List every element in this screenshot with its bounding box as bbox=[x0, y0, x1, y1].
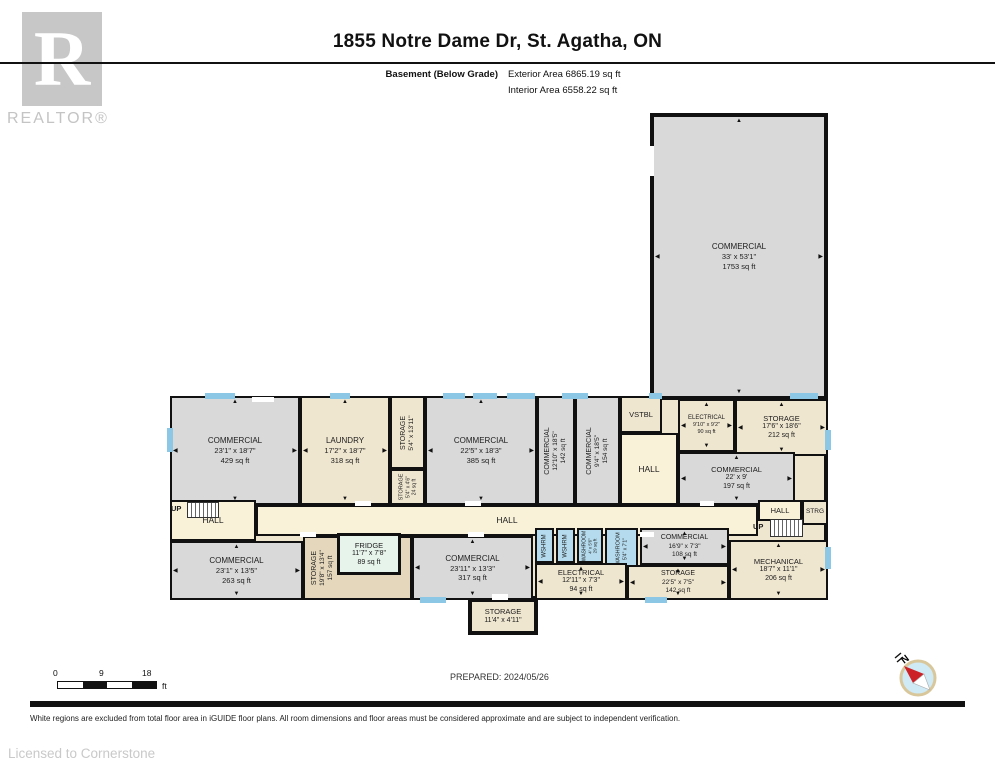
scale-tick-9: 9 bbox=[99, 668, 104, 678]
dimension-arrow: ▶ bbox=[529, 448, 534, 454]
scale-segment bbox=[58, 682, 83, 688]
window bbox=[473, 393, 497, 399]
room-laundry: LAUNDRY17'2" x 18'7"318 sq ft▲▼◀▶ bbox=[300, 396, 390, 505]
dimension-arrow: ◀ bbox=[630, 580, 635, 586]
dimension-arrow: ▲ bbox=[232, 399, 238, 405]
stairs-up-label: UP bbox=[171, 504, 181, 513]
scale-segment bbox=[132, 682, 157, 688]
stairs bbox=[770, 519, 803, 537]
dimension-arrow: ▲ bbox=[478, 399, 484, 405]
room-commercial-429: COMMERCIAL23'1" x 18'7"429 sq ft▲▼◀▶ bbox=[170, 396, 300, 505]
dimension-arrow: ▶ bbox=[727, 423, 732, 429]
dimension-arrow: ◀ bbox=[428, 448, 433, 454]
scale-tick-18: 18 bbox=[142, 668, 151, 678]
dimension-arrow: ▼ bbox=[342, 496, 348, 502]
window bbox=[562, 393, 588, 399]
dimension-arrow: ▼ bbox=[704, 443, 710, 449]
dimension-arrow: ◀ bbox=[655, 254, 660, 260]
dimension-arrow: ▼ bbox=[675, 591, 681, 597]
scale-unit: ft bbox=[162, 681, 167, 691]
room-storage-bump: STORAGE11'4" x 4'11" bbox=[468, 598, 538, 635]
window bbox=[420, 597, 446, 603]
room-storage-142: STORAGE22'5" x 7'5"142 sq ft▲▼◀▶ bbox=[627, 565, 729, 600]
stairs bbox=[187, 502, 219, 518]
floorplan-canvas: COMMERCIAL33' x 53'1"1753 sq ft▲▼◀▶COMME… bbox=[0, 0, 995, 768]
dimension-arrow: ▲ bbox=[682, 531, 688, 537]
dimension-arrow: ▶ bbox=[721, 580, 726, 586]
room-fridge: FRIDGE11'7" x 7'8"89 sq ft bbox=[337, 533, 401, 575]
floorplan-page: R REALTOR® 1855 Notre Dame Dr, St. Agath… bbox=[0, 0, 995, 768]
dimension-arrow: ◀ bbox=[173, 448, 178, 454]
dimension-arrow: ◀ bbox=[681, 476, 686, 482]
room-electrical-90: ELECTRICAL9'10" x 9'2"90 sq ft▲▼◀▶ bbox=[678, 399, 735, 452]
dimension-arrow: ▶ bbox=[292, 448, 297, 454]
prepared-date: PREPARED: 2024/05/26 bbox=[450, 672, 549, 682]
dimension-arrow: ◀ bbox=[681, 423, 686, 429]
dimension-arrow: ▲ bbox=[470, 539, 476, 545]
dimension-arrow: ▶ bbox=[818, 254, 823, 260]
door-opening bbox=[355, 501, 371, 506]
scale-tick-0: 0 bbox=[53, 668, 58, 678]
dimension-arrow: ◀ bbox=[643, 544, 648, 550]
dimension-arrow: ▶ bbox=[787, 476, 792, 482]
room-washroom-29: WASHROOM4' x 5'6"29 sq ft bbox=[577, 528, 603, 563]
door-opening bbox=[252, 397, 274, 402]
stairs-up-label: UP bbox=[753, 522, 763, 531]
room-storage-24: STORAGE5'4" x 4'6"24 sq ft bbox=[390, 469, 425, 505]
dimension-arrow: ▶ bbox=[382, 448, 387, 454]
dimension-arrow: ◀ bbox=[173, 568, 178, 574]
dimension-arrow: ▲ bbox=[734, 455, 740, 461]
disclaimer-text: White regions are excluded from total fl… bbox=[30, 714, 970, 723]
room-electrical-94: ELECTRICAL12'11" x 7'3"94 sq ft▲▼◀▶ bbox=[535, 563, 627, 600]
dimension-arrow: ▲ bbox=[779, 402, 785, 408]
door-opening bbox=[700, 501, 714, 506]
dimension-arrow: ▶ bbox=[619, 579, 624, 585]
room-strg: STRG bbox=[802, 500, 828, 525]
room-hall-right: HALL bbox=[758, 500, 802, 521]
dimension-arrow: ▶ bbox=[295, 568, 300, 574]
dimension-arrow: ▼ bbox=[776, 591, 782, 597]
room-storage-212: STORAGE17'6" x 18'6"212 sq ft▲▼◀▶ bbox=[735, 399, 828, 456]
licensed-to: Licensed to Cornerstone bbox=[8, 746, 155, 761]
scale-segment bbox=[107, 682, 132, 688]
dimension-arrow: ▲ bbox=[342, 399, 348, 405]
room-commercial-142: COMMERCIAL12'10" x 18'5"142 sq ft bbox=[537, 396, 575, 505]
room-commercial-154: COMMERCIAL9'4" x 18'5"154 sq ft bbox=[575, 396, 620, 505]
window bbox=[825, 430, 831, 450]
dimension-arrow: ◀ bbox=[303, 448, 308, 454]
dimension-arrow: ◀ bbox=[738, 425, 743, 431]
scale-segment bbox=[83, 682, 108, 688]
room-wshrm-2: WSHRM bbox=[556, 528, 575, 563]
dimension-arrow: ▲ bbox=[704, 402, 710, 408]
dimension-arrow: ▼ bbox=[470, 591, 476, 597]
window bbox=[790, 393, 818, 399]
room-commercial-263: COMMERCIAL23'1" x 13'5"263 sq ft▲▼◀▶ bbox=[170, 541, 303, 600]
window bbox=[825, 547, 831, 569]
door-opening bbox=[492, 594, 508, 600]
room-commercial-197: COMMERCIAL22' x 9'197 sq ft▲▼◀▶ bbox=[678, 452, 795, 505]
door-opening bbox=[465, 501, 481, 506]
window bbox=[507, 393, 535, 399]
dimension-arrow: ▲ bbox=[578, 566, 584, 572]
dimension-arrow: ▲ bbox=[234, 544, 240, 550]
dimension-arrow: ▼ bbox=[734, 496, 740, 502]
dimension-arrow: ▶ bbox=[721, 544, 726, 550]
window bbox=[330, 393, 350, 399]
window bbox=[167, 428, 173, 452]
compass-icon: N bbox=[888, 648, 942, 702]
dimension-arrow: ▲ bbox=[675, 568, 681, 574]
dimension-arrow: ▲ bbox=[776, 543, 782, 549]
dimension-arrow: ◀ bbox=[415, 565, 420, 571]
door-opening bbox=[640, 532, 654, 537]
room-storage-5-4: STORAGE5'4" x 13'11" bbox=[390, 396, 425, 469]
room-mechanical: MECHANICAL18'7" x 11'1"206 sq ft▲▼◀▶ bbox=[729, 540, 828, 600]
dimension-arrow: ▼ bbox=[682, 556, 688, 562]
window bbox=[649, 393, 662, 399]
door-opening bbox=[646, 146, 654, 176]
dimension-arrow: ◀ bbox=[732, 567, 737, 573]
footer-divider bbox=[30, 701, 965, 707]
room-hall-upper-right: HALL bbox=[620, 433, 678, 505]
room-wshrm-1: WSHRM bbox=[535, 528, 554, 563]
door-opening bbox=[468, 532, 484, 537]
window bbox=[443, 393, 465, 399]
dimension-arrow: ◀ bbox=[538, 579, 543, 585]
dimension-arrow: ▼ bbox=[578, 591, 584, 597]
door-opening bbox=[300, 532, 316, 537]
room-commercial-1753: COMMERCIAL33' x 53'1"1753 sq ft▲▼◀▶ bbox=[650, 113, 828, 400]
room-commercial-385: COMMERCIAL22'5" x 18'3"385 sq ft▲▼◀▶ bbox=[425, 396, 537, 505]
dimension-arrow: ▲ bbox=[736, 118, 742, 124]
window bbox=[645, 597, 667, 603]
window bbox=[205, 393, 235, 399]
scale-bar bbox=[57, 681, 157, 689]
dimension-arrow: ▼ bbox=[234, 591, 240, 597]
room-commercial-317: COMMERCIAL23'11" x 13'3"317 sq ft▲▼◀▶ bbox=[412, 536, 533, 600]
dimension-arrow: ▶ bbox=[525, 565, 530, 571]
room-vstbl: VSTBL bbox=[620, 396, 662, 433]
dimension-arrow: ▼ bbox=[736, 389, 742, 395]
